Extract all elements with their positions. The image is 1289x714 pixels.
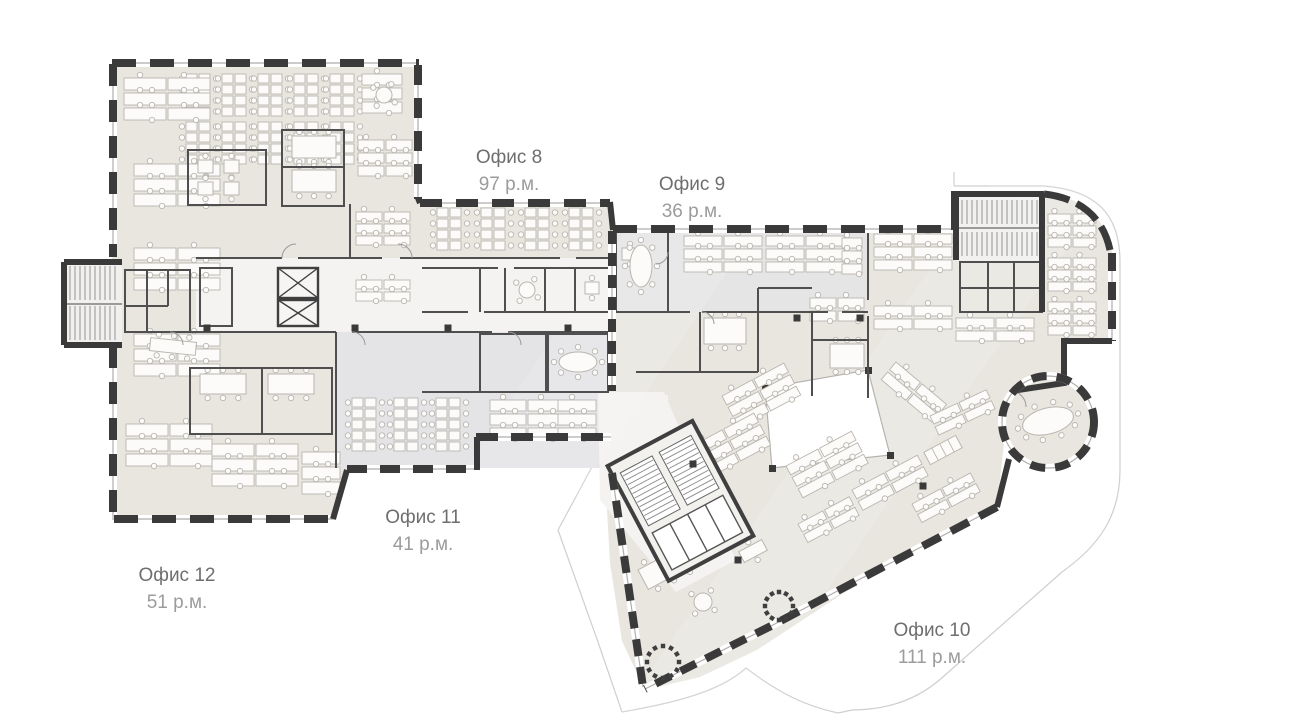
oval-table xyxy=(551,344,604,379)
elevator-shafts xyxy=(278,268,318,326)
office-11-label: Офис 11 41 р.м. xyxy=(385,504,461,558)
office-12-name: Офис 12 xyxy=(139,562,216,589)
meeting-table xyxy=(149,331,198,362)
office-10-label: Офис 10 111 р.м. xyxy=(894,617,971,671)
office-11-area: 41 р.м. xyxy=(385,531,461,558)
meeting-table xyxy=(268,367,314,400)
office-12-area: 51 р.м. xyxy=(139,589,216,616)
office-9-area: 36 р.м. xyxy=(659,198,725,225)
office-8-label: Офис 8 97 р.м. xyxy=(476,144,542,198)
floor-plan-page: Офис 8 97 р.м. Офис 9 36 р.м. Офис 10 11… xyxy=(0,0,1289,714)
office-8-name: Офис 8 xyxy=(476,144,542,171)
office-10-area: 111 р.м. xyxy=(894,644,971,671)
office-8-area: 97 р.м. xyxy=(476,171,542,198)
office-9-label: Офис 9 36 р.м. xyxy=(659,171,725,225)
desk-cluster xyxy=(302,446,340,496)
office-10-name: Офис 10 xyxy=(894,617,971,644)
desk-cluster xyxy=(842,232,862,276)
office-9-name: Офис 9 xyxy=(659,171,725,198)
meeting-table xyxy=(292,163,336,198)
meeting-table xyxy=(292,129,336,164)
oval-table xyxy=(622,237,659,294)
meeting-table xyxy=(830,337,864,374)
meeting-table xyxy=(200,367,246,400)
office-11-name: Офис 11 xyxy=(385,504,461,531)
office-12-label: Офис 12 51 р.м. xyxy=(139,562,216,616)
